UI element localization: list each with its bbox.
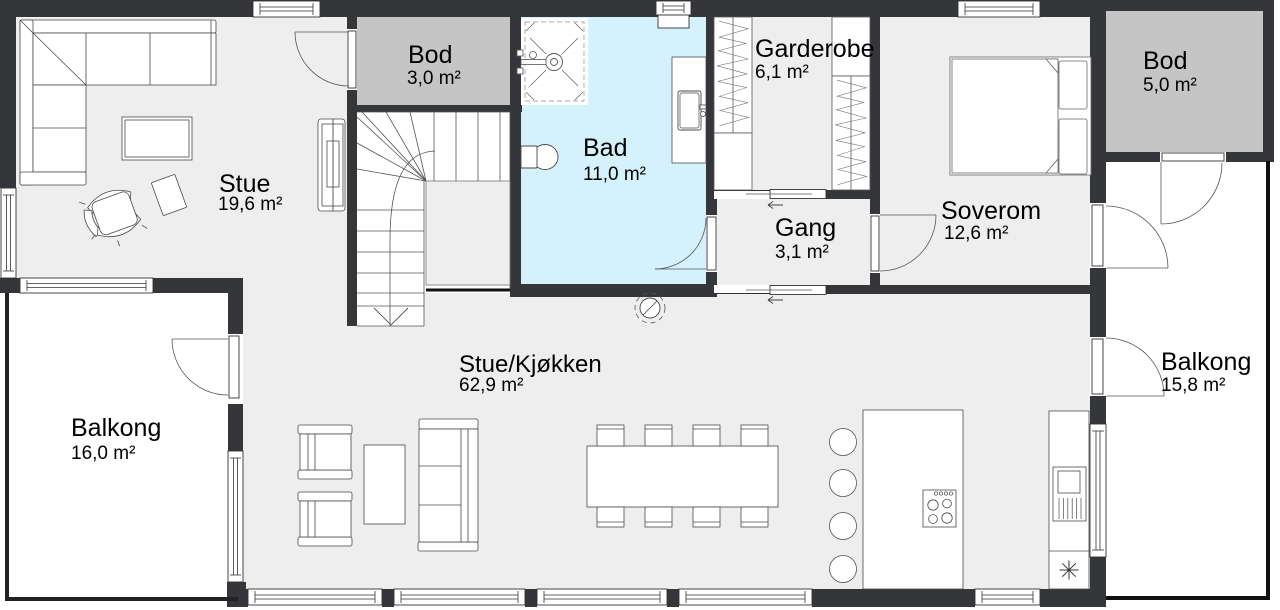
svg-text:62,9 m²: 62,9 m² xyxy=(459,375,523,396)
svg-text:5,0 m²: 5,0 m² xyxy=(1143,75,1197,96)
svg-text:Stue/Kjøkken: Stue/Kjøkken xyxy=(459,351,602,378)
svg-text:Bod: Bod xyxy=(1143,47,1187,75)
svg-text:3,1 m²: 3,1 m² xyxy=(775,242,829,263)
svg-text:3,0 m²: 3,0 m² xyxy=(407,68,461,89)
svg-text:Soverom: Soverom xyxy=(941,197,1041,225)
svg-text:Balkong: Balkong xyxy=(71,414,161,442)
svg-text:Gang: Gang xyxy=(775,214,836,242)
svg-text:Bod: Bod xyxy=(408,41,452,69)
svg-text:Balkong: Balkong xyxy=(1161,348,1251,376)
svg-text:15,8 m²: 15,8 m² xyxy=(1161,375,1225,396)
svg-text:11,0 m²: 11,0 m² xyxy=(583,164,646,185)
svg-text:Bad: Bad xyxy=(583,134,627,162)
svg-text:16,0 m²: 16,0 m² xyxy=(71,443,135,464)
svg-text:6,1 m²: 6,1 m² xyxy=(755,62,809,83)
svg-text:Garderobe: Garderobe xyxy=(755,35,875,63)
svg-text:19,6 m²: 19,6 m² xyxy=(218,194,282,215)
svg-text:12,6 m²: 12,6 m² xyxy=(944,223,1008,244)
